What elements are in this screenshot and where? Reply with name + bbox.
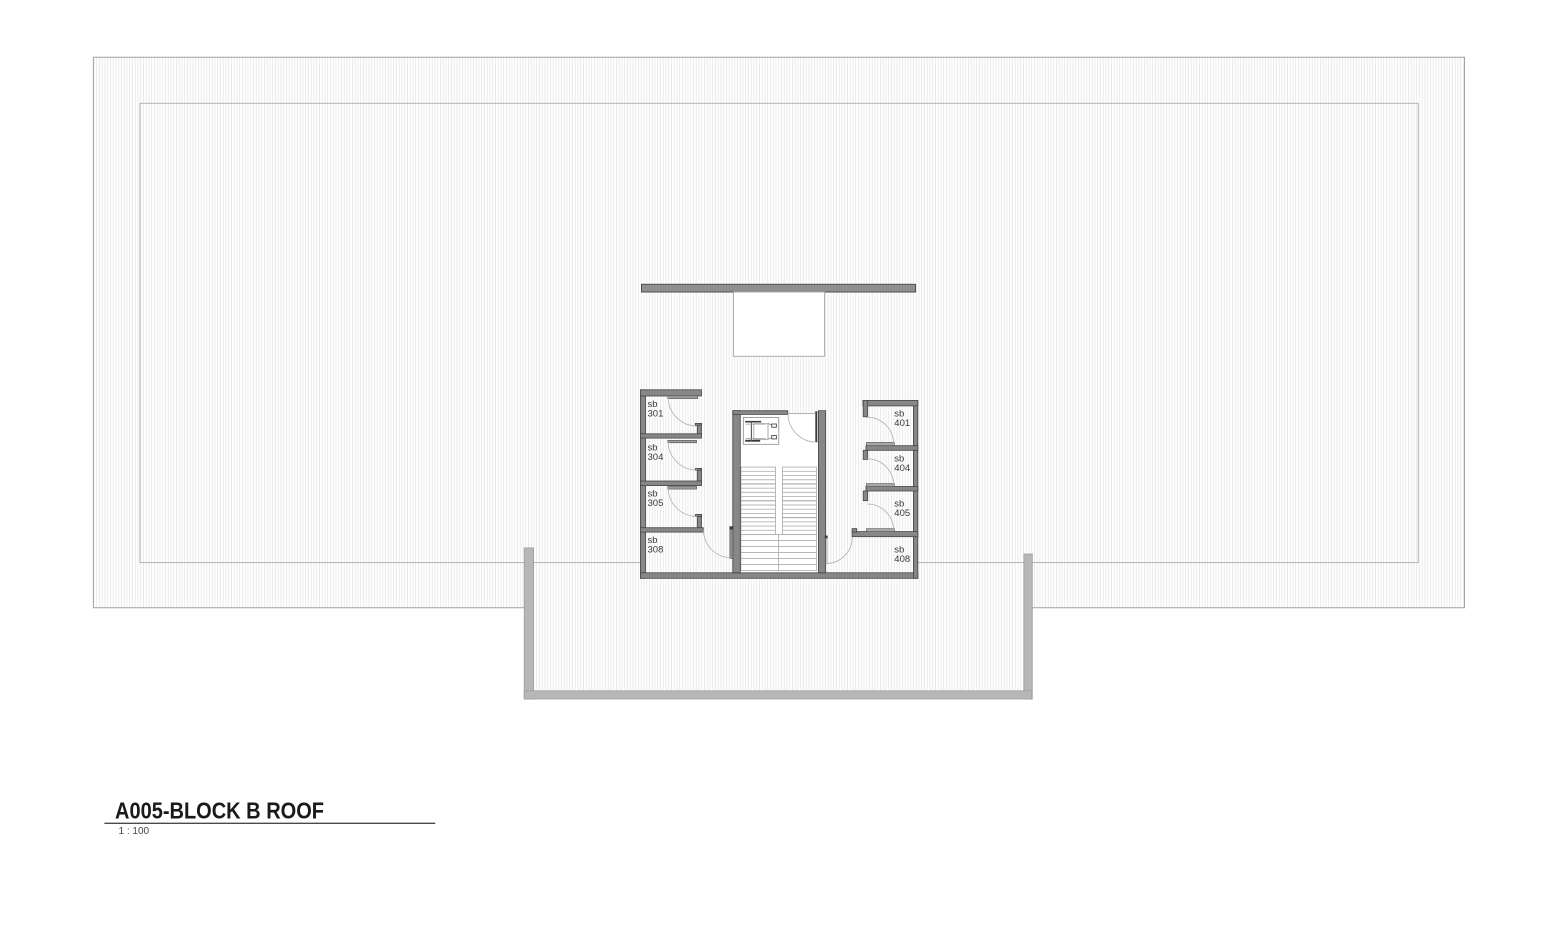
svg-text:404: 404 [894,463,910,474]
svg-text:A005-BLOCK B ROOF: A005-BLOCK B ROOF [115,798,324,824]
svg-text:301: 301 [648,409,664,420]
svg-text:304: 304 [648,452,664,463]
svg-text:1 : 100: 1 : 100 [119,826,150,837]
svg-text:305: 305 [648,498,664,509]
svg-text:408: 408 [894,554,910,565]
svg-text:405: 405 [894,508,910,519]
svg-text:308: 308 [648,544,664,555]
svg-text:401: 401 [894,418,910,429]
